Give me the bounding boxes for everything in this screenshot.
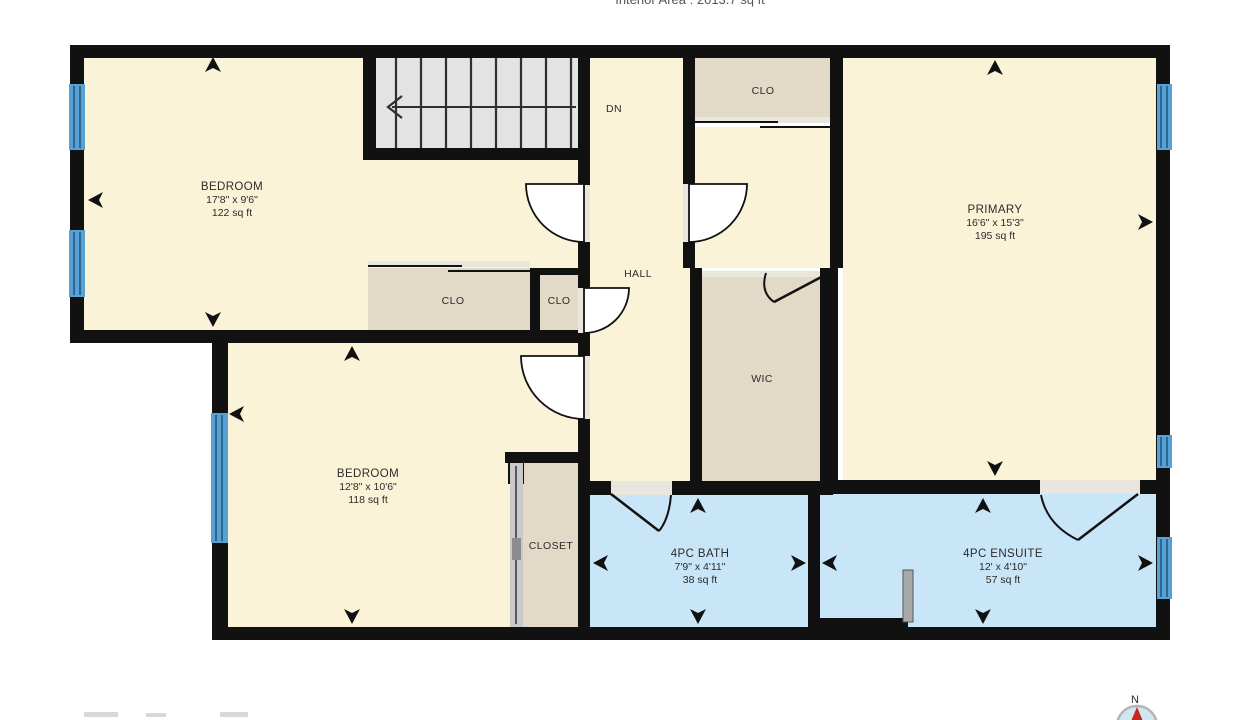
svg-text:4PC BATH: 4PC BATH	[671, 548, 730, 560]
svg-text:195 sq ft: 195 sq ft	[975, 230, 1015, 242]
closet-label: CLOSET	[529, 540, 574, 552]
window	[69, 84, 85, 150]
compass-north-label: N	[1131, 694, 1139, 706]
window	[1157, 435, 1172, 468]
hall-floor-sliver	[683, 268, 690, 483]
svg-text:7'9" x 4'11": 7'9" x 4'11"	[675, 561, 726, 573]
svg-text:118 sq ft: 118 sq ft	[348, 494, 388, 506]
window	[1157, 84, 1172, 150]
svg-text:BEDROOM: BEDROOM	[337, 468, 399, 480]
shower-glass-panel	[903, 570, 913, 622]
clo-left-label: CLO	[442, 295, 465, 307]
svg-text:16'6" x 15'3": 16'6" x 15'3"	[966, 217, 1024, 229]
interior-area-header: Interior Area : 2013.7 sq ft	[615, 0, 765, 7]
window	[69, 230, 85, 297]
svg-text:57 sq ft: 57 sq ft	[986, 574, 1021, 586]
svg-text:PRIMARY: PRIMARY	[968, 204, 1023, 216]
svg-text:12'8" x 10'6": 12'8" x 10'6"	[339, 481, 397, 493]
clo-top-label: CLO	[752, 85, 775, 97]
hall-label: HALL	[624, 268, 652, 280]
primary-floor	[843, 58, 1156, 482]
svg-text:38 sq ft: 38 sq ft	[683, 574, 718, 586]
window	[211, 413, 228, 543]
wic-label: WIC	[751, 373, 773, 385]
stairs-floor	[375, 58, 578, 148]
clo-mid-label: CLO	[548, 295, 571, 307]
svg-text:BEDROOM: BEDROOM	[201, 181, 263, 193]
svg-text:17'8" x 9'6": 17'8" x 9'6"	[206, 194, 258, 206]
stairs	[375, 58, 578, 148]
window	[1157, 537, 1172, 599]
floor-plan-svg: Interior Area : 2013.7 sq ft	[0, 0, 1240, 720]
svg-text:4PC ENSUITE: 4PC ENSUITE	[963, 548, 1043, 560]
closet-slider	[510, 463, 523, 627]
svg-text:12' x 4'10": 12' x 4'10"	[979, 561, 1027, 573]
svg-text:122 sq ft: 122 sq ft	[212, 207, 252, 219]
stairs-dn-label: DN	[606, 103, 622, 115]
